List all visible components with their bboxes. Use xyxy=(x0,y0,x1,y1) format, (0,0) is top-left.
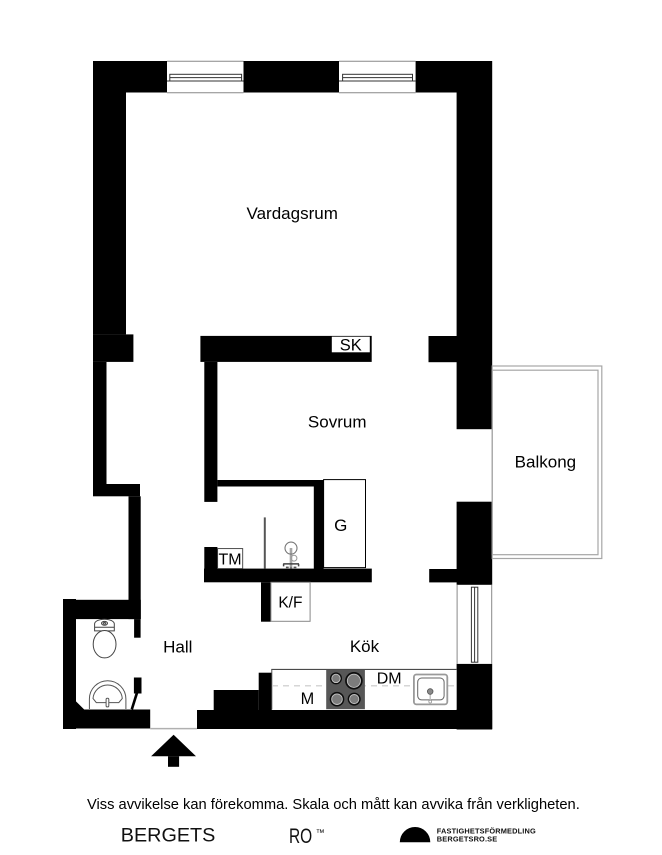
svg-text:BERGETS: BERGETS xyxy=(121,824,216,846)
svg-text:Sovrum: Sovrum xyxy=(308,412,367,431)
svg-text:Kök: Kök xyxy=(350,637,380,656)
svg-text:Viss avvikelse kan förekomma.: Viss avvikelse kan förekomma. Skala och … xyxy=(87,797,580,813)
svg-text:DM: DM xyxy=(377,671,402,688)
svg-text:Vardagsrum: Vardagsrum xyxy=(247,204,338,223)
svg-text:Balkong: Balkong xyxy=(515,453,576,472)
svg-text:SK: SK xyxy=(340,336,362,354)
svg-text:BERGETSRO.SE: BERGETSRO.SE xyxy=(437,835,498,844)
svg-text:M: M xyxy=(301,690,315,708)
svg-text:G: G xyxy=(334,516,347,535)
svg-text:TM: TM xyxy=(218,552,241,569)
svg-text:K/F: K/F xyxy=(278,595,302,612)
svg-text:Hall: Hall xyxy=(163,638,192,657)
svg-text:RO: RO xyxy=(289,823,312,847)
svg-text:™: ™ xyxy=(316,827,325,837)
